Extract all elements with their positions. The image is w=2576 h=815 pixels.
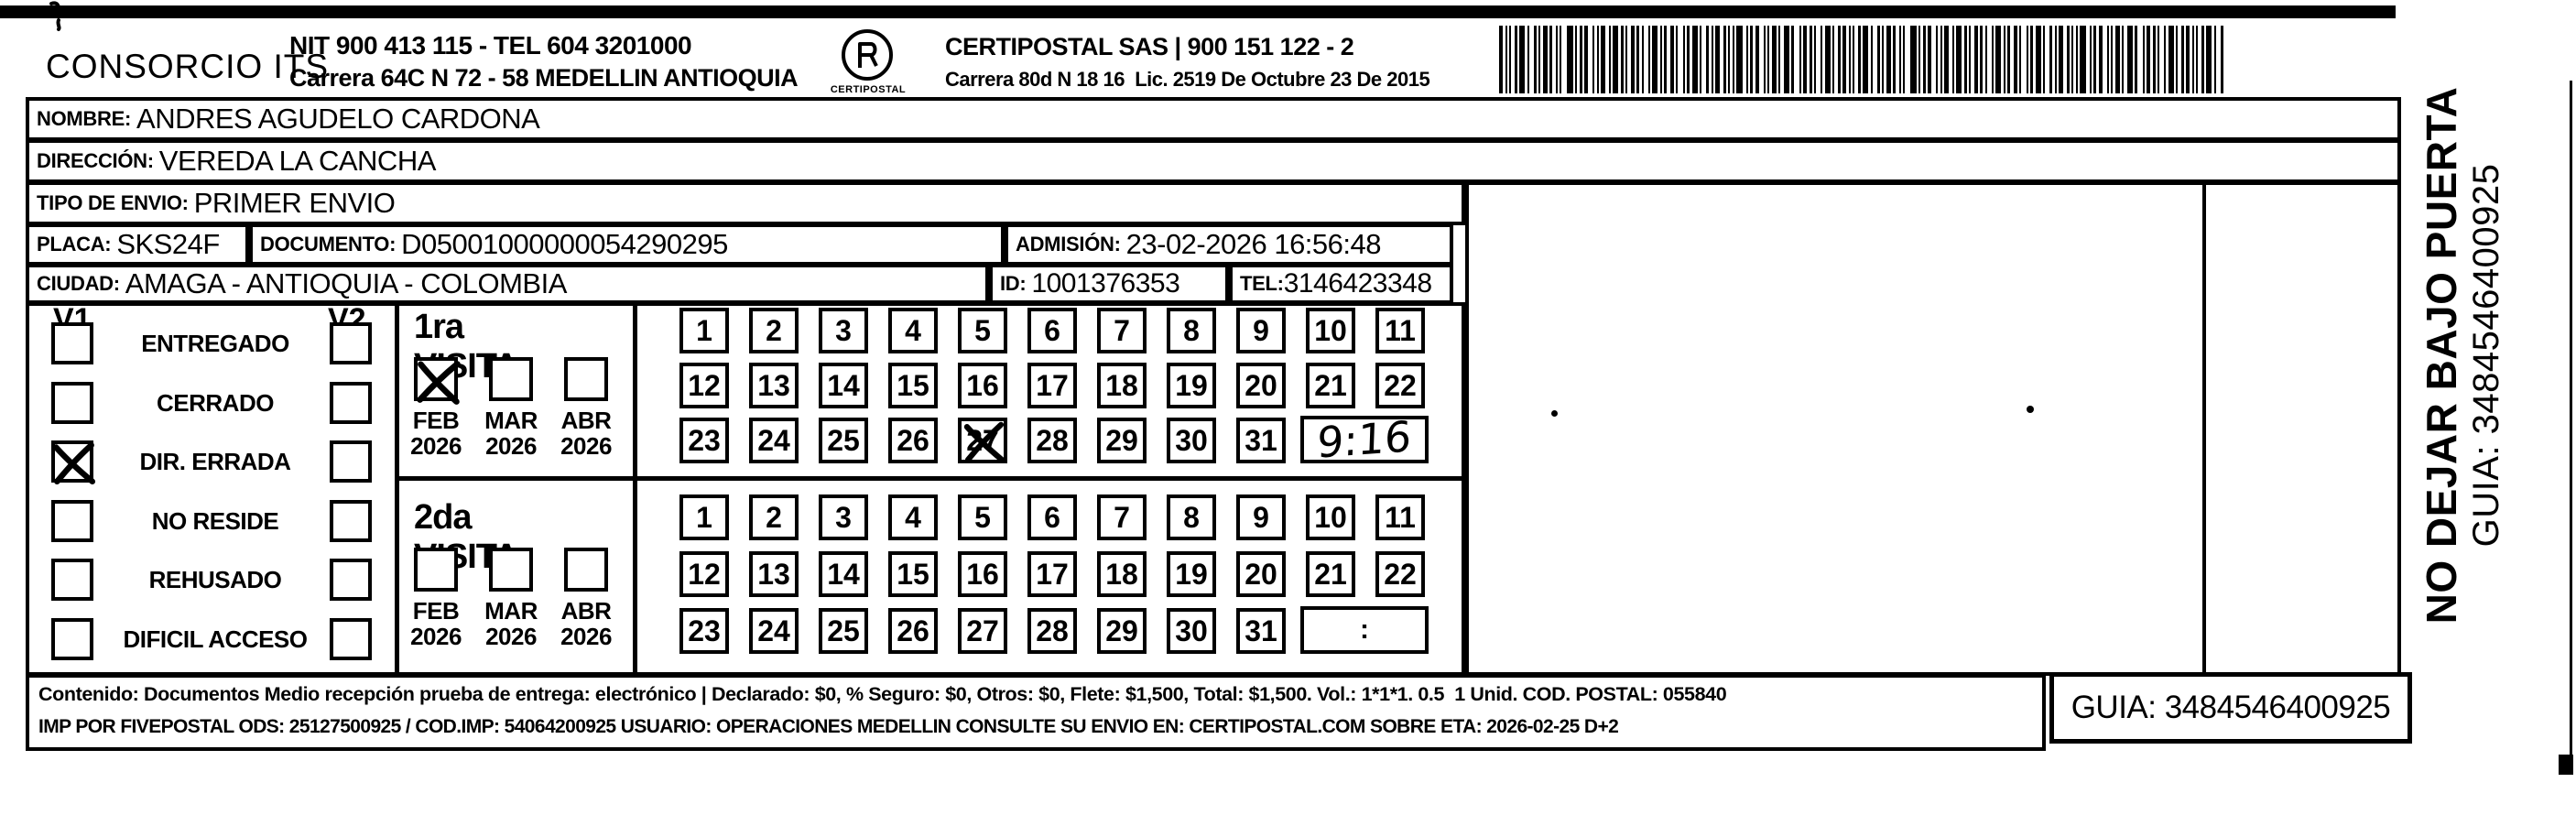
visit2-day-cell-13: 13 xyxy=(749,551,799,597)
visit1-time-box: 9:16 xyxy=(1300,416,1429,463)
visit2-day-cell-29: 29 xyxy=(1097,608,1147,654)
direccion-value: VEREDA LA CANCHA xyxy=(159,145,436,178)
visit2-day-cell-8: 8 xyxy=(1167,494,1216,540)
visit2-day-cell-7: 7 xyxy=(1097,494,1147,540)
scan-dot xyxy=(1551,410,1558,417)
scan-artifact-squiggle xyxy=(44,0,71,31)
direccion-label: DIRECCIÓN: xyxy=(29,149,159,173)
visit2-day-cell-12: 12 xyxy=(679,551,729,597)
visit1-day-cell-28: 28 xyxy=(1027,418,1077,463)
visit2-day-cell-2: 2 xyxy=(749,494,799,540)
footer-box: Contenido: Documentos Medio recepción pr… xyxy=(26,674,2046,751)
ciudad-label: CIUDAD: xyxy=(29,272,125,296)
side-warning-text: NO DEJAR BAJO PUERTA xyxy=(2418,81,2466,630)
visit2-day-cell-25: 25 xyxy=(819,608,868,654)
visit1-day-cell-24: 24 xyxy=(749,418,799,463)
visit2-day-cell-11: 11 xyxy=(1375,494,1425,540)
tel-cell: TEL: 3146423348 xyxy=(1229,264,1453,304)
visit2-month-year-mar: 2026 xyxy=(470,623,552,651)
company-info-line1: NIT 900 413 115 - TEL 604 3201000 xyxy=(289,31,691,60)
visit1-day-cell-13: 13 xyxy=(749,363,799,408)
status-label-cerrado: CERRADO xyxy=(101,389,330,418)
visit1-month-checkbox-abr xyxy=(564,357,608,401)
visit1-month-label-abr: ABR xyxy=(545,407,627,435)
visit-panel-right-border xyxy=(633,302,637,676)
visit1-day-cell-9: 9 xyxy=(1236,308,1286,353)
visit1-day-cell-27: 27 xyxy=(958,418,1007,463)
guia-number: GUIA: 3484546400925 xyxy=(2071,690,2391,726)
visit1-day-cell-14: 14 xyxy=(819,363,868,408)
visit1-month-year-mar: 2026 xyxy=(470,432,552,461)
visit1-day-cell-11: 11 xyxy=(1375,308,1425,353)
visit2-time-colon: : xyxy=(1360,614,1369,646)
direccion-row: DIRECCIÓN: VEREDA LA CANCHA xyxy=(26,139,2401,183)
visit1-day-cell-5: 5 xyxy=(958,308,1007,353)
visit1-month-label-feb: FEB xyxy=(395,407,477,435)
status-label-dificil-acceso: DIFICIL ACCESO xyxy=(101,625,330,654)
tel-label: TEL: xyxy=(1233,272,1284,296)
top-border-bar xyxy=(0,5,2396,18)
visit1-day-cell-2: 2 xyxy=(749,308,799,353)
visit1-day-cell-22: 22 xyxy=(1375,363,1425,408)
visit1-day-cell-23: 23 xyxy=(679,418,729,463)
visit1-day-cell-16: 16 xyxy=(958,363,1007,408)
status-checkbox-v2-dificil-acceso xyxy=(330,618,372,660)
id-cell: ID: 1001376353 xyxy=(989,264,1229,304)
visit2-day-cell-21: 21 xyxy=(1306,551,1355,597)
status-checkbox-v1-dificil-acceso xyxy=(51,618,93,660)
company-info-line2: Carrera 64C N 72 - 58 MEDELLIN ANTIOQUIA xyxy=(289,64,798,92)
scan-dot xyxy=(2027,406,2034,413)
status-checkbox-v2-entregado xyxy=(330,322,372,364)
visit1-day-cell-3: 3 xyxy=(819,308,868,353)
visit2-day-cell-26: 26 xyxy=(888,608,938,654)
admision-cell: ADMISIÓN: 23-02-2026 16:56:48 xyxy=(1005,223,1453,266)
status-checkbox-v2-rehusado xyxy=(330,559,372,601)
visit2-day-cell-27: 27 xyxy=(958,608,1007,654)
visit2-day-cell-1: 1 xyxy=(679,494,729,540)
status-checkbox-v1-entregado xyxy=(51,322,93,364)
visit2-day-cell-23: 23 xyxy=(679,608,729,654)
visit2-day-cell-20: 20 xyxy=(1236,551,1286,597)
visit1-day-cell-18: 18 xyxy=(1097,363,1147,408)
ciudad-cell: CIUDAD: AMAGA - ANTIOQUIA - COLOMBIA xyxy=(26,264,989,304)
tipo-envio-value: PRIMER ENVIO xyxy=(194,187,396,220)
visit-divider xyxy=(395,476,1465,481)
nombre-label: NOMBRE: xyxy=(29,107,136,131)
visit2-day-cell-17: 17 xyxy=(1027,551,1077,597)
visit2-day-cell-6: 6 xyxy=(1027,494,1077,540)
status-label-rehusado: REHUSADO xyxy=(101,566,330,594)
visit1-day-cell-8: 8 xyxy=(1167,308,1216,353)
status-checkbox-v1-no-reside xyxy=(51,500,93,542)
status-label-dir-errada: DIR. ERRADA xyxy=(101,448,330,476)
visit1-day-cell-30: 30 xyxy=(1167,418,1216,463)
status-checkbox-v2-dir-errada xyxy=(330,440,372,483)
visit1-day-cell-15: 15 xyxy=(888,363,938,408)
visit2-day-cell-18: 18 xyxy=(1097,551,1147,597)
company-name: CONSORCIO ITS xyxy=(46,48,329,86)
visit2-day-cell-9: 9 xyxy=(1236,494,1286,540)
visit1-day-cell-25: 25 xyxy=(819,418,868,463)
visit1-day-cell-17: 17 xyxy=(1027,363,1077,408)
visit2-day-cell-16: 16 xyxy=(958,551,1007,597)
carrier-line1: CERTIPOSTAL SAS | 900 151 122 - 2 xyxy=(945,33,1353,61)
tipo-envio-label: TIPO DE ENVIO: xyxy=(29,191,194,215)
barcode xyxy=(1499,26,2228,93)
documento-cell: DOCUMENTO: D05001000000054290295 xyxy=(249,223,1005,266)
visit2-month-year-abr: 2026 xyxy=(545,623,627,651)
admision-value: 23-02-2026 16:56:48 xyxy=(1126,228,1381,261)
visit2-month-checkbox-mar xyxy=(489,548,533,592)
footer-line1: Contenido: Documentos Medio recepción pr… xyxy=(38,683,1726,706)
side-warning-block: NO DEJAR BAJO PUERTA GUIA: 3484546400925 xyxy=(2418,81,2519,630)
visit1-day-cell-29: 29 xyxy=(1097,418,1147,463)
handwritten-x-mark xyxy=(49,438,100,489)
visit1-day-cell-4: 4 xyxy=(888,308,938,353)
visit1-month-year-abr: 2026 xyxy=(545,432,627,461)
status-checkbox-v2-cerrado xyxy=(330,382,372,424)
visit2-day-cell-31: 31 xyxy=(1236,608,1286,654)
documento-value: D05001000000054290295 xyxy=(401,228,728,261)
status-label-entregado: ENTREGADO xyxy=(101,330,330,358)
id-value: 1001376353 xyxy=(1031,268,1179,299)
delivery-slip-scan: CONSORCIO ITS NIT 900 413 115 - TEL 604 … xyxy=(0,0,2576,815)
nombre-row: NOMBRE: ANDRES AGUDELO CARDONA xyxy=(26,97,2401,141)
certipostal-logo xyxy=(838,26,897,84)
observaciones-column xyxy=(2202,181,2401,676)
placa-label: PLACA: xyxy=(29,233,116,256)
visit1-day-cell-20: 20 xyxy=(1236,363,1286,408)
status-checkbox-v1-cerrado xyxy=(51,382,93,424)
visit2-day-cell-30: 30 xyxy=(1167,608,1216,654)
guia-box: GUIA: 3484546400925 xyxy=(2049,672,2412,744)
id-label: ID: xyxy=(993,272,1031,296)
visit2-day-cell-28: 28 xyxy=(1027,608,1077,654)
visit1-month-checkbox-feb xyxy=(414,357,458,401)
visit1-day-cell-1: 1 xyxy=(679,308,729,353)
visit2-day-cell-15: 15 xyxy=(888,551,938,597)
visit2-day-cell-5: 5 xyxy=(958,494,1007,540)
visit2-day-cell-22: 22 xyxy=(1375,551,1425,597)
visit1-day-cell-31: 31 xyxy=(1236,418,1286,463)
status-checkbox-v2-no-reside xyxy=(330,500,372,542)
admision-label: ADMISIÓN: xyxy=(1008,233,1126,256)
visit1-day-cell-10: 10 xyxy=(1306,308,1355,353)
visit2-day-cell-19: 19 xyxy=(1167,551,1216,597)
visit2-month-checkbox-feb xyxy=(414,548,458,592)
visit2-month-checkbox-abr xyxy=(564,548,608,592)
placa-value: SKS24F xyxy=(116,228,219,261)
visit2-month-label-feb: FEB xyxy=(395,597,477,625)
visit1-day-cell-7: 7 xyxy=(1097,308,1147,353)
logo-caption: CERTIPOSTAL xyxy=(830,84,907,95)
visit1-month-checkbox-mar xyxy=(489,357,533,401)
status-checkbox-v1-rehusado xyxy=(51,559,93,601)
status-checkbox-v1-dir-errada xyxy=(51,440,93,483)
visit1-day-cell-26: 26 xyxy=(888,418,938,463)
nombre-value: ANDRES AGUDELO CARDONA xyxy=(136,103,539,136)
visit2-day-cell-4: 4 xyxy=(888,494,938,540)
footer-line2: IMP POR FIVEPOSTAL ODS: 25127500925 / CO… xyxy=(38,716,1618,738)
visit1-day-cell-19: 19 xyxy=(1167,363,1216,408)
carrier-line2: Carrera 80d N 18 16 Lic. 2519 De Octubre… xyxy=(945,68,1429,92)
documento-label: DOCUMENTO: xyxy=(253,233,401,256)
visit1-month-year-feb: 2026 xyxy=(395,432,477,461)
status-label-no-reside: NO RESIDE xyxy=(101,507,330,536)
visit2-month-label-mar: MAR xyxy=(470,597,552,625)
visit2-day-cell-24: 24 xyxy=(749,608,799,654)
visit1-day-cell-6: 6 xyxy=(1027,308,1077,353)
visit2-time-box: : xyxy=(1300,606,1429,654)
firma-column xyxy=(1465,181,2206,676)
visit2-day-cell-3: 3 xyxy=(819,494,868,540)
handwritten-x-mark xyxy=(958,418,1011,467)
visit2-month-year-feb: 2026 xyxy=(395,623,477,651)
placa-cell: PLACA: SKS24F xyxy=(26,223,249,266)
visit1-handwritten-time: 9:16 xyxy=(1317,411,1413,467)
tel-value: 3146423348 xyxy=(1284,268,1432,299)
visit2-day-cell-14: 14 xyxy=(819,551,868,597)
visit2-month-label-abr: ABR xyxy=(545,597,627,625)
ciudad-value: AMAGA - ANTIOQUIA - COLOMBIA xyxy=(125,267,567,300)
visit1-day-cell-21: 21 xyxy=(1306,363,1355,408)
scan-edge-line xyxy=(2570,81,2572,769)
scan-edge-blob xyxy=(2559,755,2573,775)
visit1-month-label-mar: MAR xyxy=(470,407,552,435)
side-guia-text: GUIA: 3484546400925 xyxy=(2466,81,2507,630)
visit1-day-cell-12: 12 xyxy=(679,363,729,408)
visit2-day-cell-10: 10 xyxy=(1306,494,1355,540)
tipo-envio-cell: TIPO DE ENVIO: PRIMER ENVIO xyxy=(26,181,1465,225)
